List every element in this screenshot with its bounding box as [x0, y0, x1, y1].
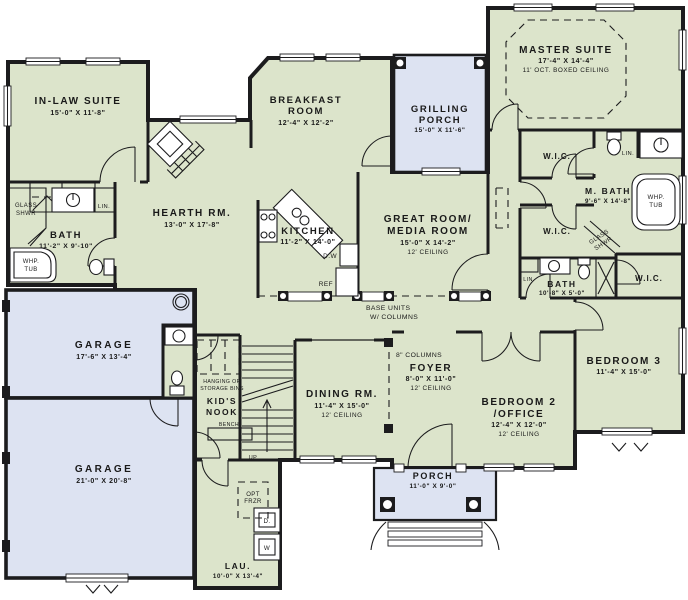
window — [4, 86, 11, 126]
label-opt-freezer-2: FRZR — [244, 499, 262, 505]
label-whp-tub-inlaw-2: TUB — [24, 267, 37, 273]
room-note-dining: 12' CEILING — [321, 412, 362, 419]
label-wic-1: W.I.C. — [543, 152, 571, 161]
window — [300, 456, 334, 463]
room-dims-garage1: 17'-6" X 13'-4" — [76, 354, 132, 361]
window — [26, 58, 60, 65]
room-note-great-room: 12' CEILING — [407, 249, 448, 256]
label-base-units-1: BASE UNITS — [366, 305, 410, 312]
room-label-kids-nook-1: KID'S — [207, 396, 237, 406]
porch-steps-icon — [371, 522, 499, 550]
window — [342, 456, 376, 463]
hall-bath-vanity-icon — [540, 258, 570, 274]
room-dims-bedroom3: 11'-4" X 15'-0" — [596, 369, 651, 376]
room-dims-master-suite: 17'-4" X 14'-4" — [538, 58, 594, 65]
room-label-master-suite: MASTER SUITE — [519, 45, 613, 56]
window — [679, 328, 686, 374]
label-glass-shwr-inlaw-2: SHWR — [16, 211, 36, 217]
sidelight-window — [456, 464, 466, 472]
room-dims-master-bath: 9'-6" X 14'-8" — [585, 198, 631, 205]
room-dims-hearth: 13'-0" X 17'-8" — [164, 222, 220, 229]
window — [86, 58, 120, 65]
master-toilet-icon — [607, 132, 621, 155]
great-room-colonnade — [258, 291, 491, 301]
label-dishwasher: D.W — [323, 253, 337, 260]
inlaw-whirlpool-tub-icon — [10, 248, 56, 282]
window — [596, 4, 634, 11]
label-washer: W — [264, 545, 270, 552]
stove-icon — [259, 210, 277, 242]
room-dims-garage2: 21'-0" X 20'-8" — [76, 478, 132, 485]
window — [602, 428, 652, 435]
label-wic-3: W.I.C. — [635, 274, 663, 283]
label-lin-master: LIN. — [622, 151, 634, 157]
label-whp-tub-master-2: TUB — [649, 202, 663, 209]
refrigerator-icon — [336, 268, 358, 296]
label-glass-shwr-inlaw-1: GLASS — [15, 203, 37, 209]
room-label-dining: DINING RM. — [306, 389, 378, 400]
room-note-bedroom2: 12' CEILING — [498, 431, 539, 438]
room-label-kitchen: KITCHEN — [281, 226, 334, 237]
room-dims-inlaw-bath: 11'-2" X 9'-10" — [39, 243, 93, 250]
room-label-porch: PORCH — [413, 471, 454, 481]
window — [326, 54, 360, 61]
room-label-garage1: GARAGE — [75, 340, 133, 351]
floor-plan-svg: IN-LAW SUITE 15'-0" X 11'-8" BATH 11'-2"… — [0, 0, 688, 600]
room-label-great-room-2: MEDIA ROOM — [387, 226, 469, 237]
room-note-master-suite: 11' OCT. BOXED CEILING — [523, 67, 610, 74]
room-note-foyer: 12' CEILING — [410, 385, 451, 392]
room-label-bedroom2-2: /OFFICE — [494, 409, 545, 420]
room-dims-porch: 11'-0" X 9'-0" — [410, 483, 457, 490]
garage-service-door — [66, 574, 128, 582]
dishwasher-icon — [340, 244, 358, 266]
room-label-foyer: FOYER — [410, 363, 452, 374]
label-lin-hall-bath: LIN. — [523, 277, 535, 283]
room-dims-foyer: 8'-0" X 11'-0" — [406, 376, 457, 383]
hall-bath-toilet-icon — [578, 258, 590, 279]
label-whp-tub-inlaw-1: WHP. — [23, 259, 40, 265]
room-label-hall-bath: BATH — [547, 279, 576, 289]
window — [679, 30, 686, 70]
room-dims-bedroom2: 12'-4" X 12'-0" — [491, 422, 547, 429]
room-label-great-room-1: GREAT ROOM/ — [384, 214, 473, 225]
room-label-bedroom3: BEDROOM 3 — [587, 356, 662, 367]
master-vanity-icon — [640, 132, 682, 158]
garage-bath-sink-icon — [165, 327, 193, 345]
room-label-bedroom2-1: BEDROOM 2 — [482, 397, 557, 408]
room-label-hearth: HEARTH RM. — [153, 208, 232, 219]
window — [524, 464, 554, 471]
room-label-grilling-porch-1: GRILLING — [411, 104, 469, 115]
room-dims-dining: 11'-4" X 15'-0" — [314, 403, 369, 410]
room-dims-breakfast: 12'-4" X 12'-2" — [278, 120, 334, 127]
label-wic-2: W.I.C. — [543, 227, 571, 236]
room-dims-hall-bath: 10'-8" X 5'-0" — [539, 290, 585, 297]
room-label-garage2: GARAGE — [75, 464, 133, 475]
room-dims-laundry: 10'-0" X 13'-4" — [213, 573, 263, 580]
label-whp-tub-master-1: WHP. — [648, 194, 665, 201]
room-label-in-law-suite: IN-LAW SUITE — [35, 96, 122, 107]
room-label-master-bath: M. BATH — [585, 186, 631, 196]
room-label-breakfast-2: ROOM — [288, 106, 324, 117]
room-label-laundry: LAU. — [225, 561, 251, 571]
room-dims-great-room: 15'-0" X 14'-2" — [400, 240, 456, 247]
room-dims-in-law-suite: 15'-0" X 11'-8" — [50, 110, 105, 117]
sidelight-window — [394, 464, 404, 472]
window — [180, 116, 236, 123]
room-label-inlaw-bath: BATH — [50, 230, 82, 241]
room-label-kids-nook-2: NOOK — [206, 407, 238, 417]
label-up: UP — [249, 455, 257, 461]
label-dryer: D. — [264, 518, 271, 525]
window — [514, 4, 552, 11]
room-dims-grilling-porch: 15'-0" X 11'-6" — [414, 127, 465, 134]
window — [280, 54, 314, 61]
label-bench: BENCH — [219, 422, 239, 428]
window — [484, 464, 514, 471]
room-dims-kitchen: 11'-2" X 14'-0" — [280, 239, 335, 246]
window — [422, 168, 460, 175]
label-opt-freezer-1: OPT — [246, 492, 260, 498]
label-base-units-2: W/ COLUMNS — [370, 314, 418, 321]
garage2-area — [6, 398, 194, 578]
label-hanging-bins-1: HANGING OR — [203, 379, 240, 385]
floor-plan: IN-LAW SUITE 15'-0" X 11'-8" BATH 11'-2"… — [0, 0, 688, 600]
label-refrigerator: REF — [319, 281, 333, 288]
label-lin-inlaw: LIN. — [98, 204, 110, 210]
room-label-breakfast-1: BREAKFAST — [270, 95, 342, 106]
room-label-grilling-porch-2: PORCH — [419, 115, 461, 126]
label-8in-columns: 8" COLUMNS — [396, 352, 442, 359]
label-hanging-bins-2: STORAGE BINS — [200, 386, 244, 392]
